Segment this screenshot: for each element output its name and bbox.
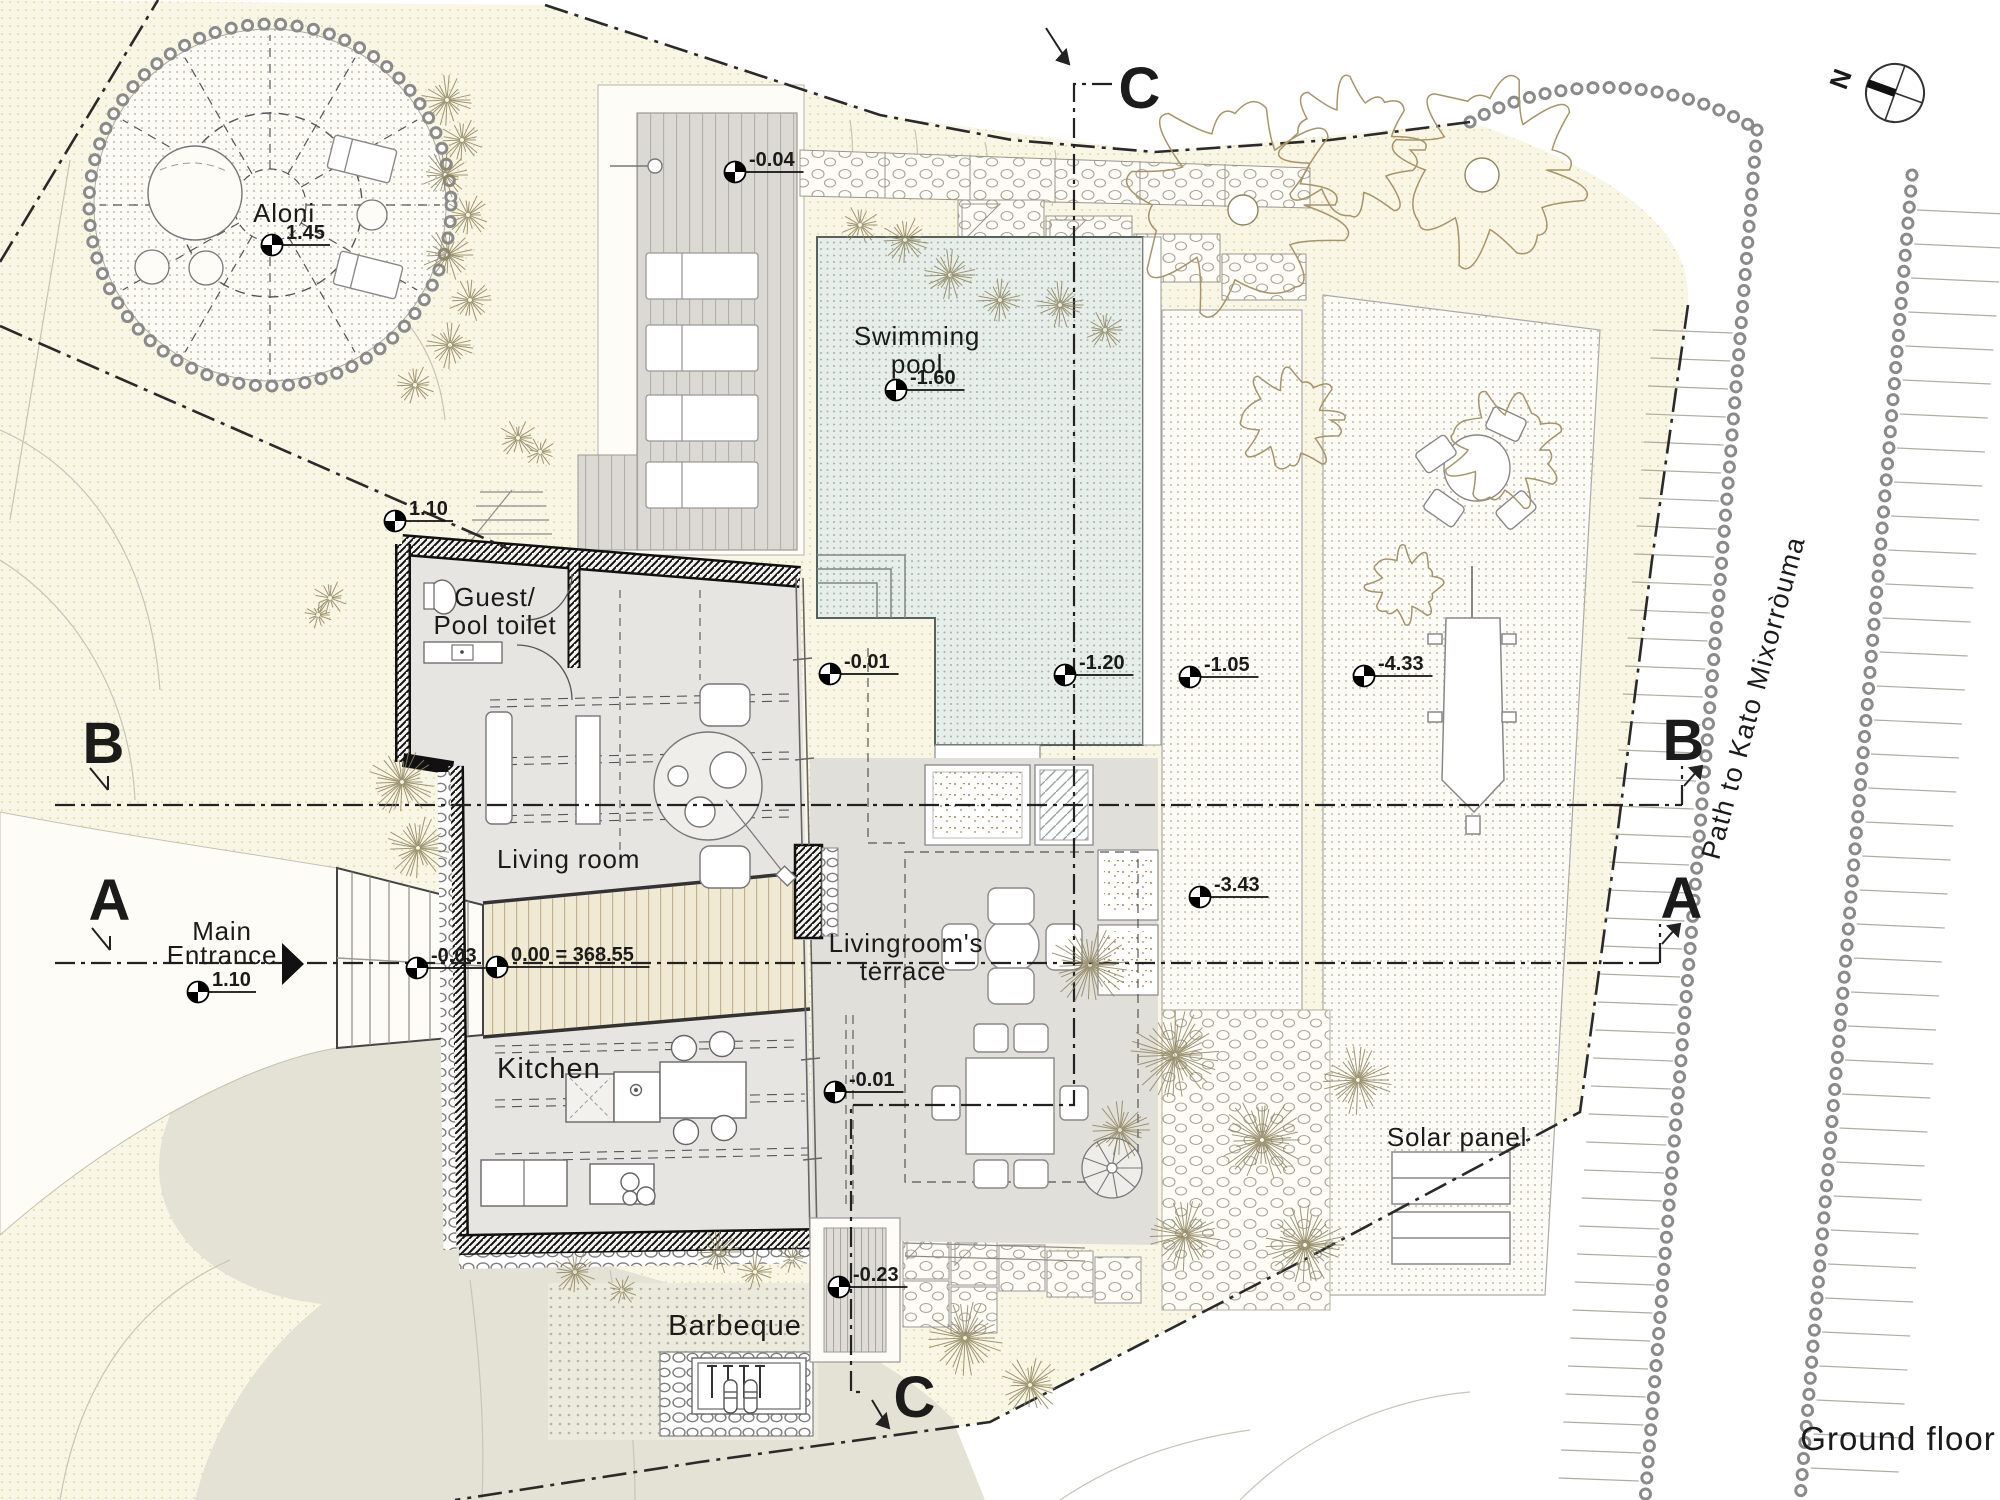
label-living-room: Living room — [497, 844, 640, 874]
elevation-value: -3.43 — [1214, 874, 1260, 896]
kitchen-island — [614, 1072, 660, 1122]
label-guest-toilet-2: Pool toilet — [434, 610, 557, 640]
label-main-entrance-2: Entrance — [167, 940, 277, 970]
label-living-terrace-1: Livingroom's — [829, 928, 984, 958]
wall-pillar — [795, 845, 822, 938]
section-letter-C-bottom: C — [894, 1365, 937, 1430]
south-deck-strip — [810, 1218, 900, 1362]
kitchen-table — [660, 1062, 746, 1118]
outdoor-shower — [648, 159, 662, 173]
elevation-value: -0.04 — [749, 149, 795, 171]
label-kitchen: Kitchen — [497, 1053, 601, 1085]
elevation-value: -1.05 — [1204, 654, 1250, 676]
elevation-value: -0.23 — [853, 1264, 899, 1286]
drawing-title: Ground floor — [1800, 1420, 1995, 1457]
label-aloni: Aloni — [253, 198, 315, 228]
label-swimming-pool-1: Swimming — [854, 321, 980, 351]
floor-plan-canvas: N 1.45-0.04-1.601.101.10-0.030.00 = 368.… — [0, 0, 2000, 1500]
label-living-terrace-2: terrace — [860, 956, 947, 986]
section-letter-A-left: A — [89, 868, 132, 933]
section-letter-A-right: A — [1661, 866, 1704, 931]
barbeque-area — [548, 1283, 818, 1440]
elevation-value: -1.20 — [1079, 652, 1125, 674]
elevation-value: -4.33 — [1378, 653, 1424, 675]
armchair — [700, 846, 750, 888]
elevation-value: -0.01 — [844, 651, 890, 673]
elevation-value: -0.03 — [431, 945, 477, 967]
tree-canopy — [148, 146, 242, 240]
section-letter-C-top: C — [1119, 56, 1162, 121]
sideboard — [576, 716, 600, 824]
label-solar-panel: Solar panel — [1387, 1122, 1527, 1152]
floor-plan-page: N 1.45-0.04-1.601.101.10-0.030.00 = 368.… — [0, 0, 2000, 1500]
section-letter-B-right: B — [1663, 708, 1706, 773]
label-swimming-pool-2: pool — [891, 349, 943, 379]
rubble-band-west — [444, 772, 450, 1250]
elevation-value: 1.10 — [409, 498, 448, 520]
elevation-value: -0.01 — [849, 1069, 895, 1091]
elevation-value: 1.10 — [212, 969, 251, 991]
section-letter-B-left: B — [83, 711, 126, 776]
label-guest-toilet-1: Guest/ — [454, 582, 535, 612]
sofa — [486, 712, 512, 824]
label-barbeque: Barbeque — [668, 1310, 802, 1342]
pool-edge-wall — [1143, 237, 1161, 745]
elevation-value: 0.00 = 368.55 — [511, 944, 634, 966]
armchair — [700, 684, 750, 726]
